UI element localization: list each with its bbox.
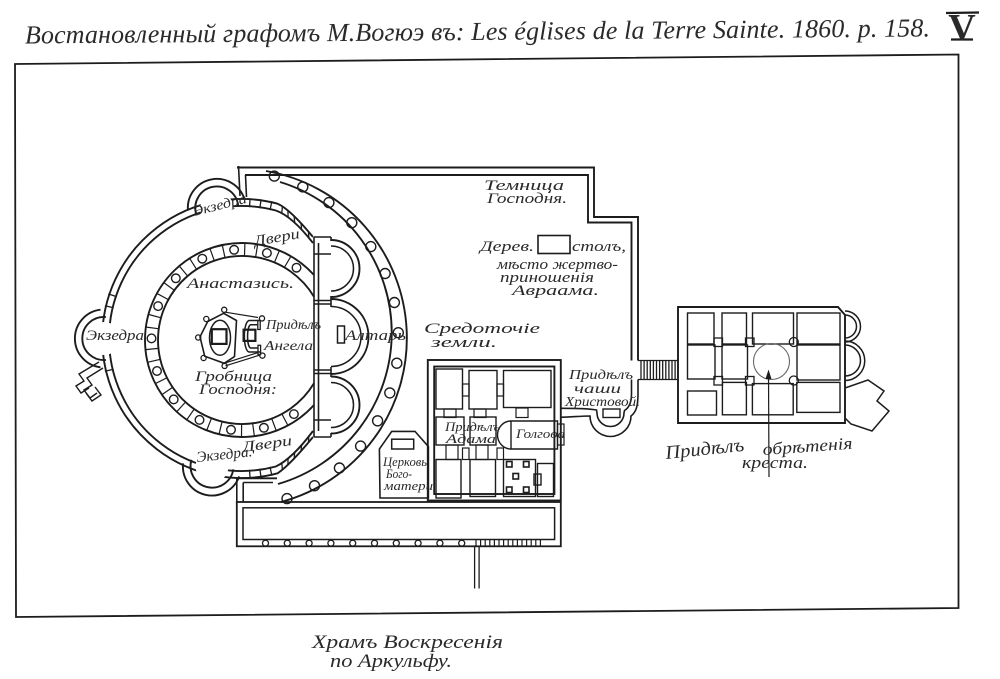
svg-text:Голгоѳа: Голгоѳа: [515, 426, 566, 441]
svg-text:Придѣлъ: Придѣлъ: [568, 368, 633, 383]
svg-text:Экзедра: Экзедра: [86, 328, 144, 344]
svg-text:Христовой.: Христовой.: [564, 395, 640, 410]
svg-text:Придѣлъ: Придѣлъ: [663, 435, 745, 464]
svg-text:Двери: Двери: [251, 226, 301, 250]
svg-text:Алтарь: Алтарь: [344, 328, 406, 344]
svg-text:столъ,: столъ,: [572, 239, 626, 255]
svg-text:креста.: креста.: [742, 453, 808, 472]
svg-text:земли.: земли.: [429, 335, 497, 351]
svg-text:Анастазись.: Анастазись.: [186, 276, 294, 292]
svg-text:Храмъ Воскресенія: Храмъ Воскресенія: [311, 632, 503, 653]
svg-text:V: V: [948, 7, 976, 49]
svg-text:Ангела: Ангела: [263, 338, 314, 353]
svg-text:Придѣлъ: Придѣлъ: [265, 317, 321, 332]
svg-text:Дерев.: Дерев.: [477, 239, 534, 255]
svg-text:по Аркульфу.: по Аркульфу.: [330, 651, 452, 672]
svg-text:матери: матери: [383, 478, 434, 493]
svg-text:Авраама.: Авраама.: [511, 283, 599, 299]
svg-text:Востановленный графомъ М.Вогюэ: Востановленный графомъ М.Вогюэ въ: Les é…: [25, 13, 930, 49]
svg-text:Господня.: Господня.: [486, 191, 567, 207]
svg-text:Господня:: Господня:: [198, 382, 277, 398]
svg-text:Экзедра.: Экзедра.: [196, 444, 253, 466]
svg-text:Адама: Адама: [445, 431, 497, 446]
